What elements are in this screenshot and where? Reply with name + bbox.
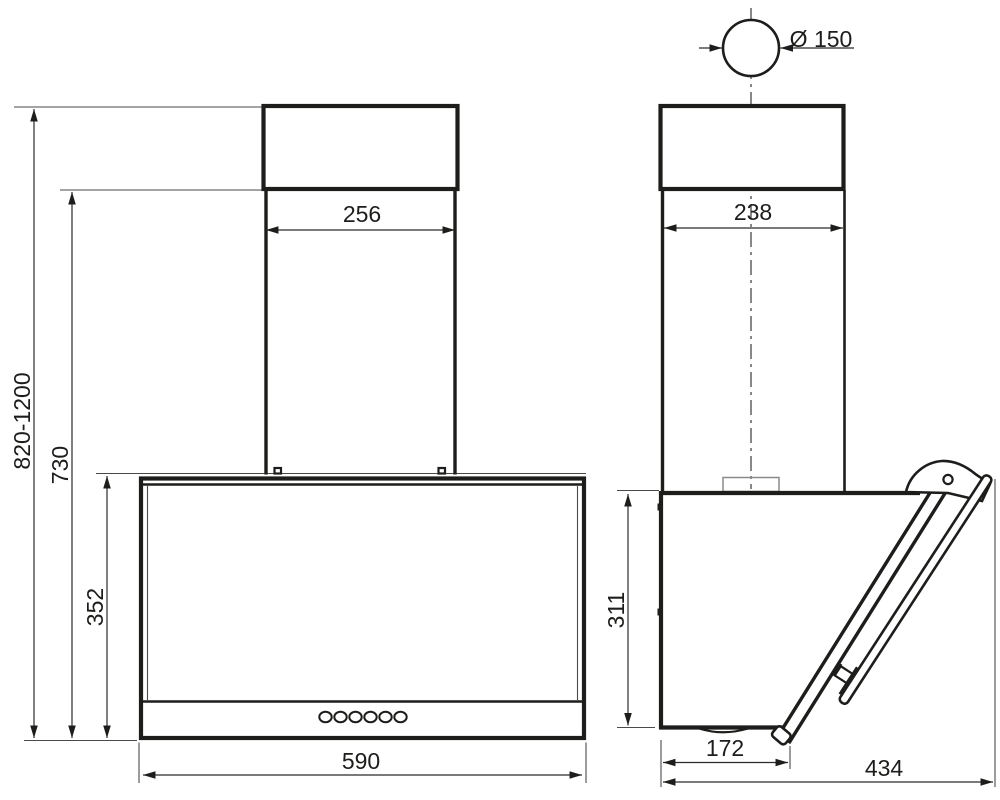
chimney-upper-section-front [264, 106, 458, 189]
side-view: Ø 150 238 311 172 434 [603, 8, 995, 787]
dim-label-chimney-width: 256 [343, 201, 381, 227]
control-button [319, 712, 331, 722]
installation-drawing: 820-1200 730 352 256 590 [0, 0, 1000, 800]
dim-label-mount-height-range: 820-1200 [9, 372, 35, 469]
chimney-bracket-right-icon [439, 468, 446, 474]
dim-label-total-depth: 434 [865, 755, 904, 781]
dim-label-chimney-depth: 238 [734, 199, 772, 225]
control-button [394, 712, 406, 722]
rear-mount-nub-upper [658, 504, 662, 511]
dim-label-body-height: 352 [82, 588, 108, 626]
dim-label-rear-height: 311 [603, 592, 629, 629]
control-button [364, 712, 376, 722]
front-view: 820-1200 730 352 256 590 [9, 106, 586, 783]
control-button [349, 712, 361, 722]
chimney-upper-section-side [661, 106, 844, 189]
rear-mount-nub-lower [658, 609, 662, 616]
dim-label-duct-diameter: Ø 150 [790, 26, 853, 52]
hood-body-front [141, 479, 584, 739]
control-button [379, 712, 391, 722]
chimney-bracket-left-icon [275, 468, 282, 474]
dim-label-floor-to-chimney: 730 [47, 446, 73, 484]
control-button [334, 712, 346, 722]
hinge-pivot-icon [943, 475, 952, 484]
dim-label-bottom-depth: 172 [706, 735, 744, 761]
glass-panel-group [821, 463, 993, 706]
inclined-front-frame [769, 479, 947, 748]
front-frame-band [779, 482, 948, 742]
installation-drawing-page: 820-1200 730 352 256 590 [0, 0, 1000, 800]
glass-panel [838, 474, 993, 705]
duct-outlet-circle [723, 20, 779, 76]
dim-label-body-width: 590 [342, 748, 380, 774]
